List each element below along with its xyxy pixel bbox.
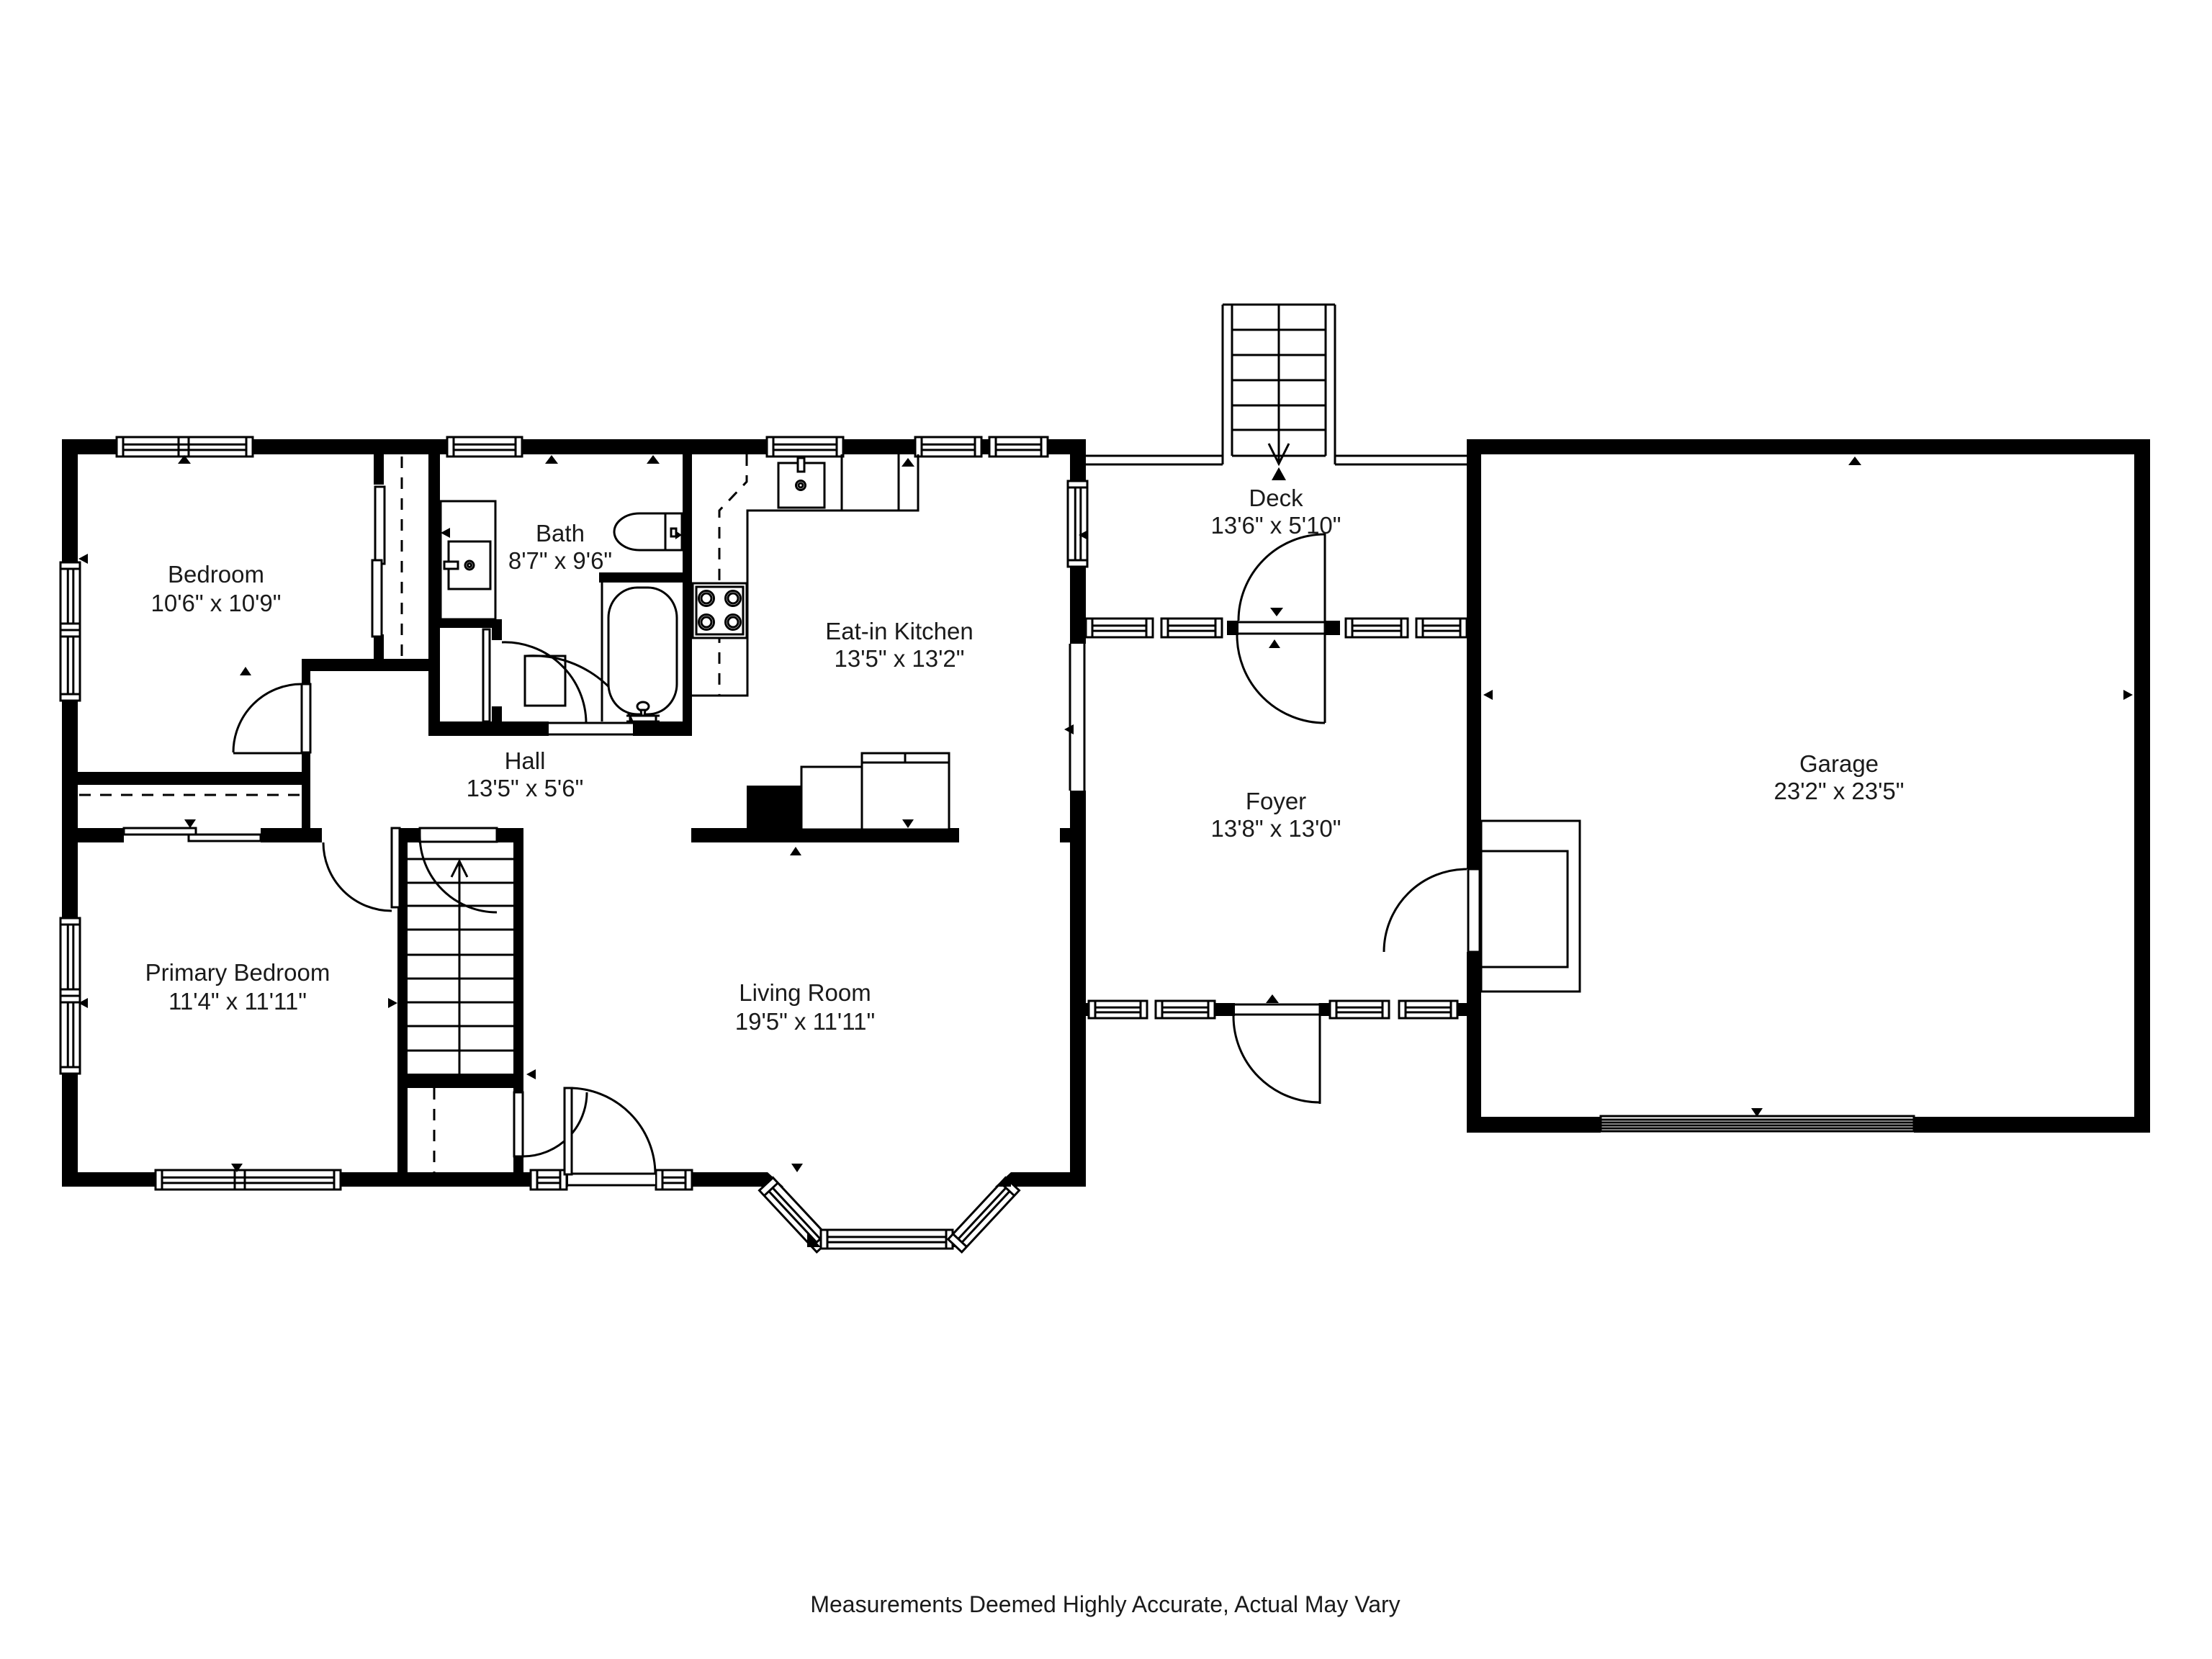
svg-text:Living Room: Living Room	[739, 979, 871, 1006]
svg-text:13'5" x 13'2": 13'5" x 13'2"	[835, 645, 965, 672]
svg-text:23'2" x 23'5": 23'2" x 23'5"	[1774, 778, 1905, 804]
svg-text:13'8" x 13'0": 13'8" x 13'0"	[1211, 815, 1341, 842]
svg-text:11'4" x 11'11": 11'4" x 11'11"	[168, 988, 307, 1015]
svg-text:13'5" x 5'6": 13'5" x 5'6"	[467, 775, 584, 801]
svg-text:10'6" x 10'9": 10'6" x 10'9"	[151, 590, 282, 616]
svg-text:Bedroom: Bedroom	[168, 561, 264, 588]
svg-text:Hall: Hall	[505, 747, 546, 774]
svg-text:Measurements Deemed Highly Acc: Measurements Deemed Highly Accurate, Act…	[810, 1591, 1400, 1617]
svg-text:8'7" x 9'6": 8'7" x 9'6"	[508, 547, 612, 574]
svg-text:Garage: Garage	[1799, 750, 1879, 777]
svg-text:Primary Bedroom: Primary Bedroom	[145, 959, 331, 986]
svg-text:Foyer: Foyer	[1246, 788, 1306, 814]
svg-text:Bath: Bath	[536, 520, 585, 547]
svg-text:19'5" x 11'11": 19'5" x 11'11"	[735, 1008, 875, 1035]
svg-text:13'6" x 5'10": 13'6" x 5'10"	[1211, 512, 1341, 539]
svg-text:Eat-in Kitchen: Eat-in Kitchen	[825, 618, 973, 644]
svg-text:Deck: Deck	[1249, 485, 1303, 511]
